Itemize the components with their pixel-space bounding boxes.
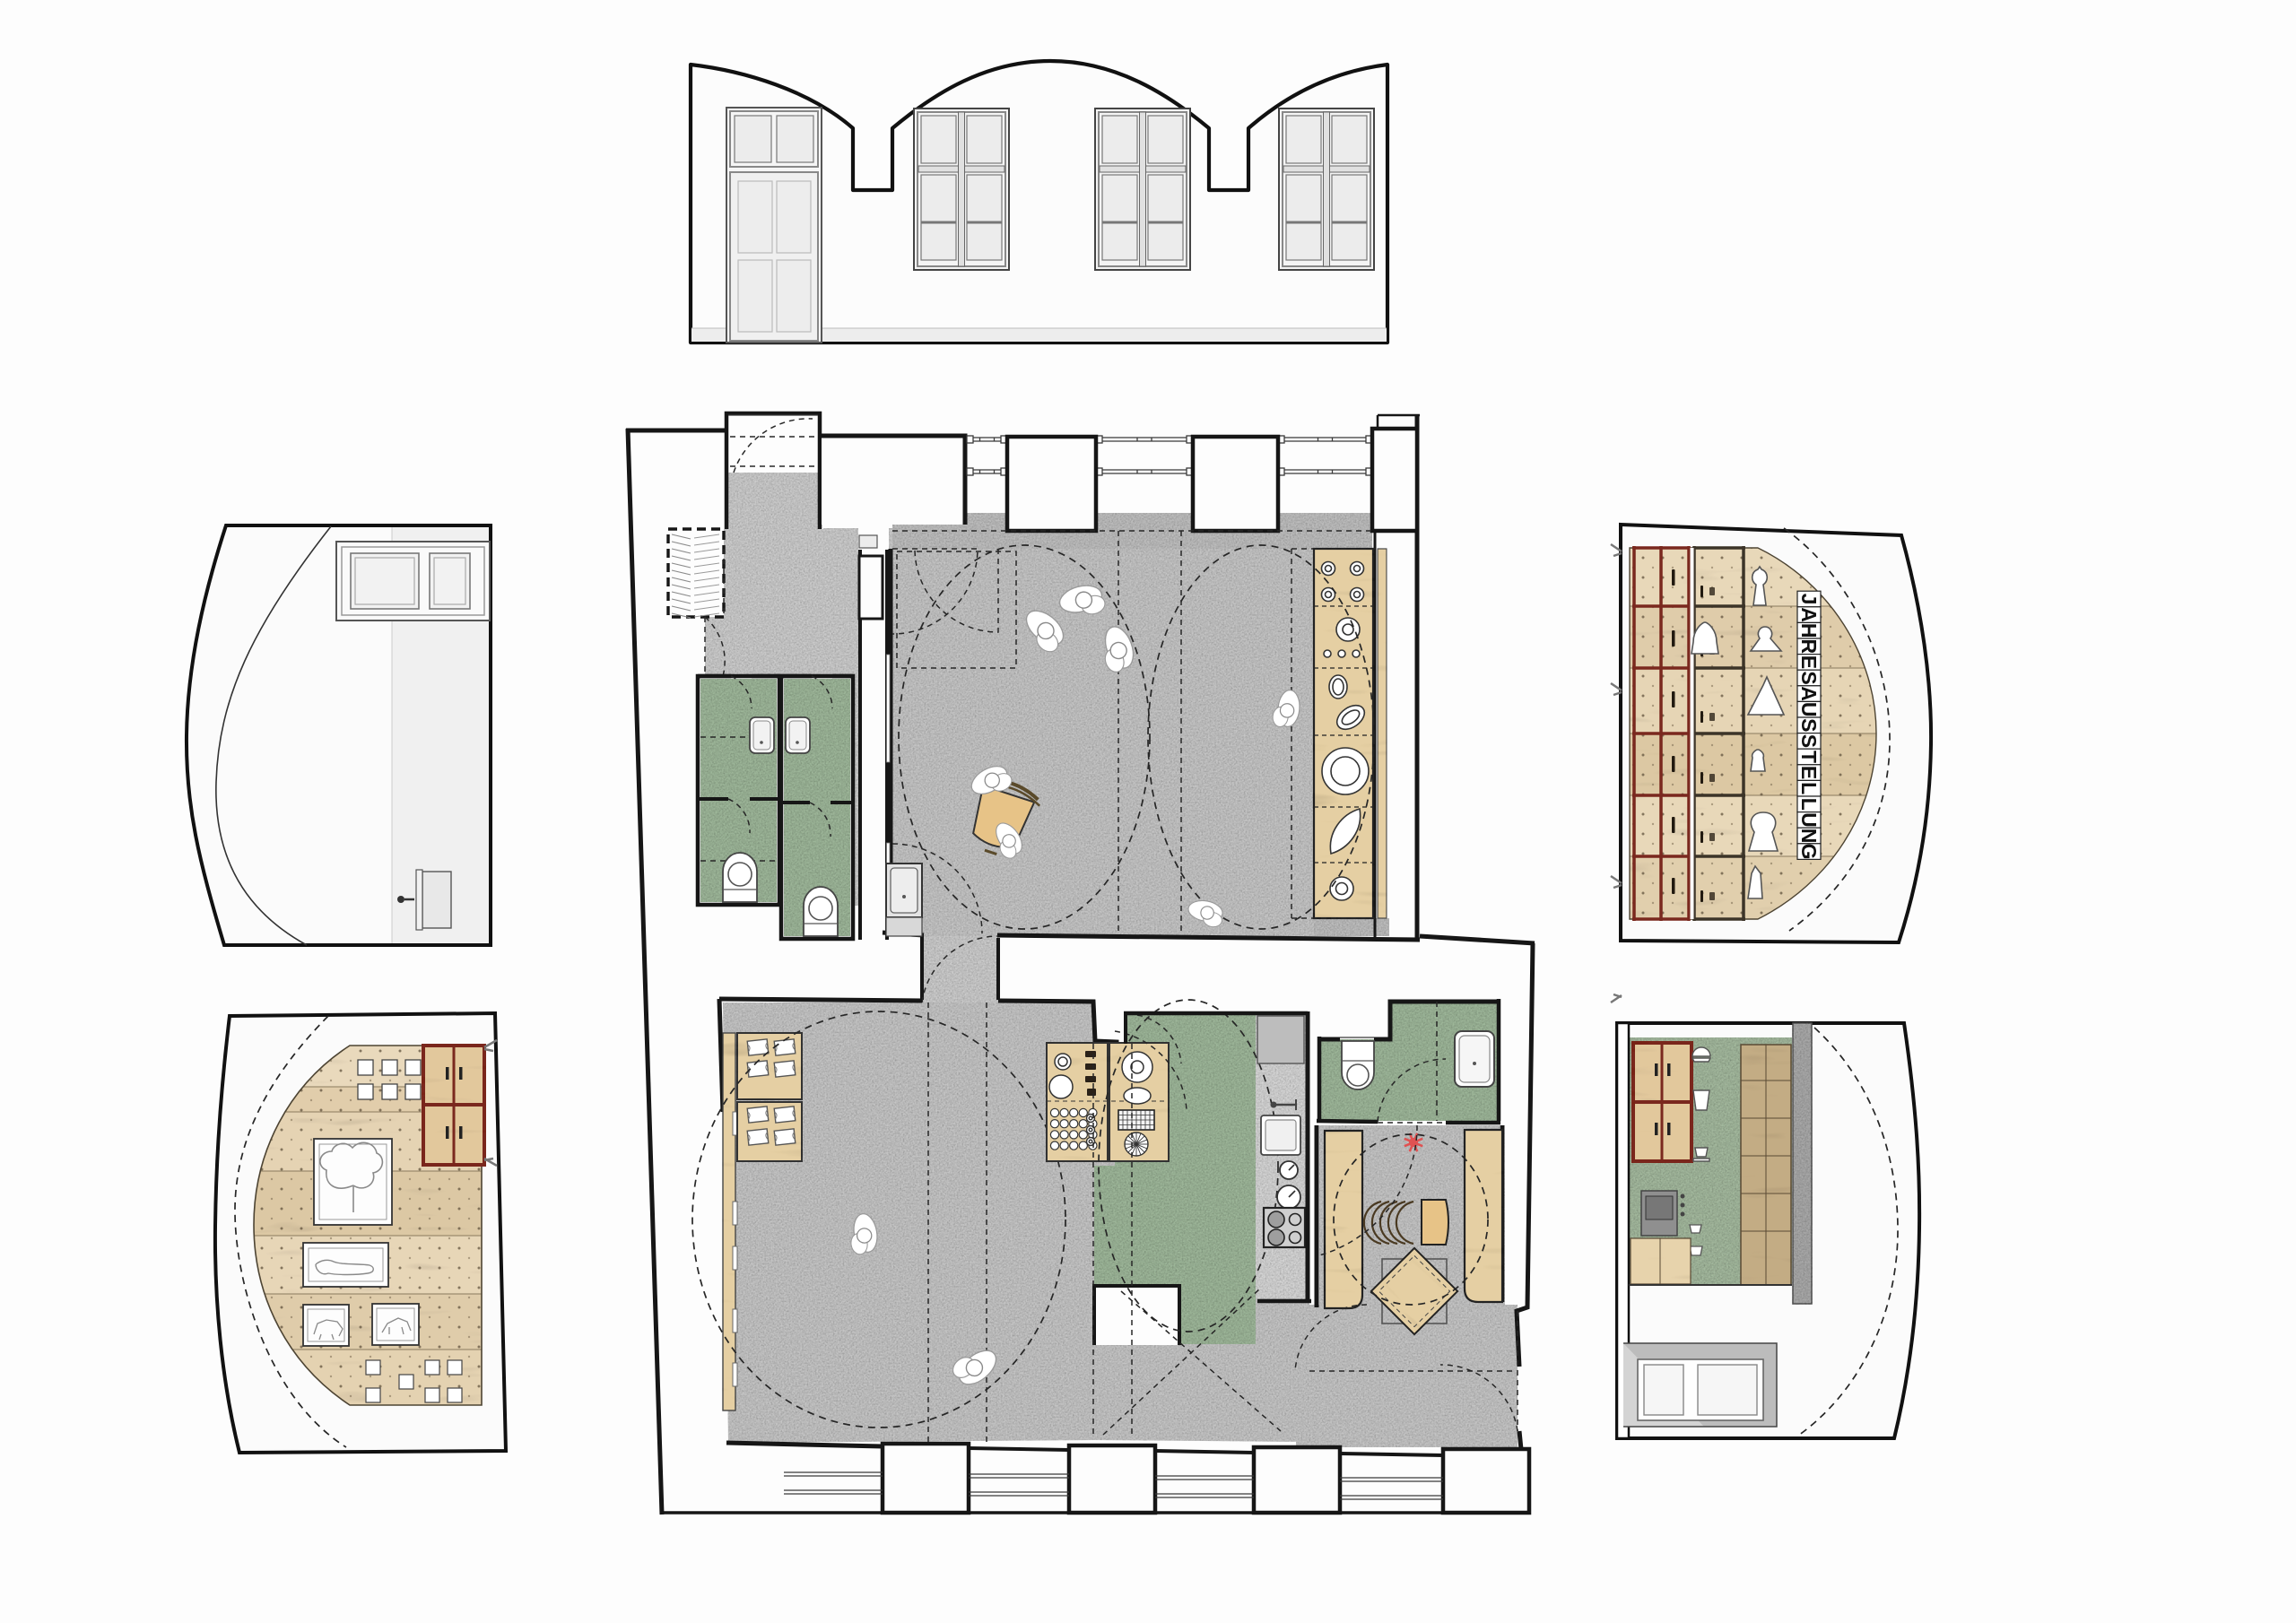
svg-text:U: U [1797, 702, 1821, 717]
svg-text:H: H [1797, 623, 1821, 638]
svg-text:L: L [1797, 798, 1821, 811]
svg-text:L: L [1797, 782, 1821, 794]
svg-text:S: S [1797, 734, 1821, 748]
svg-text:S: S [1797, 671, 1821, 684]
svg-text:S: S [1797, 718, 1821, 732]
svg-text:N: N [1797, 829, 1821, 844]
svg-text:U: U [1797, 812, 1821, 828]
svg-text:R: R [1797, 638, 1821, 654]
svg-text:T: T [1797, 751, 1821, 763]
svg-text:E: E [1797, 655, 1821, 669]
svg-text:A: A [1797, 607, 1821, 622]
svg-text:G: G [1797, 844, 1821, 860]
svg-text:J: J [1797, 594, 1821, 605]
svg-text:E: E [1797, 766, 1821, 779]
svg-text:A: A [1797, 686, 1821, 701]
